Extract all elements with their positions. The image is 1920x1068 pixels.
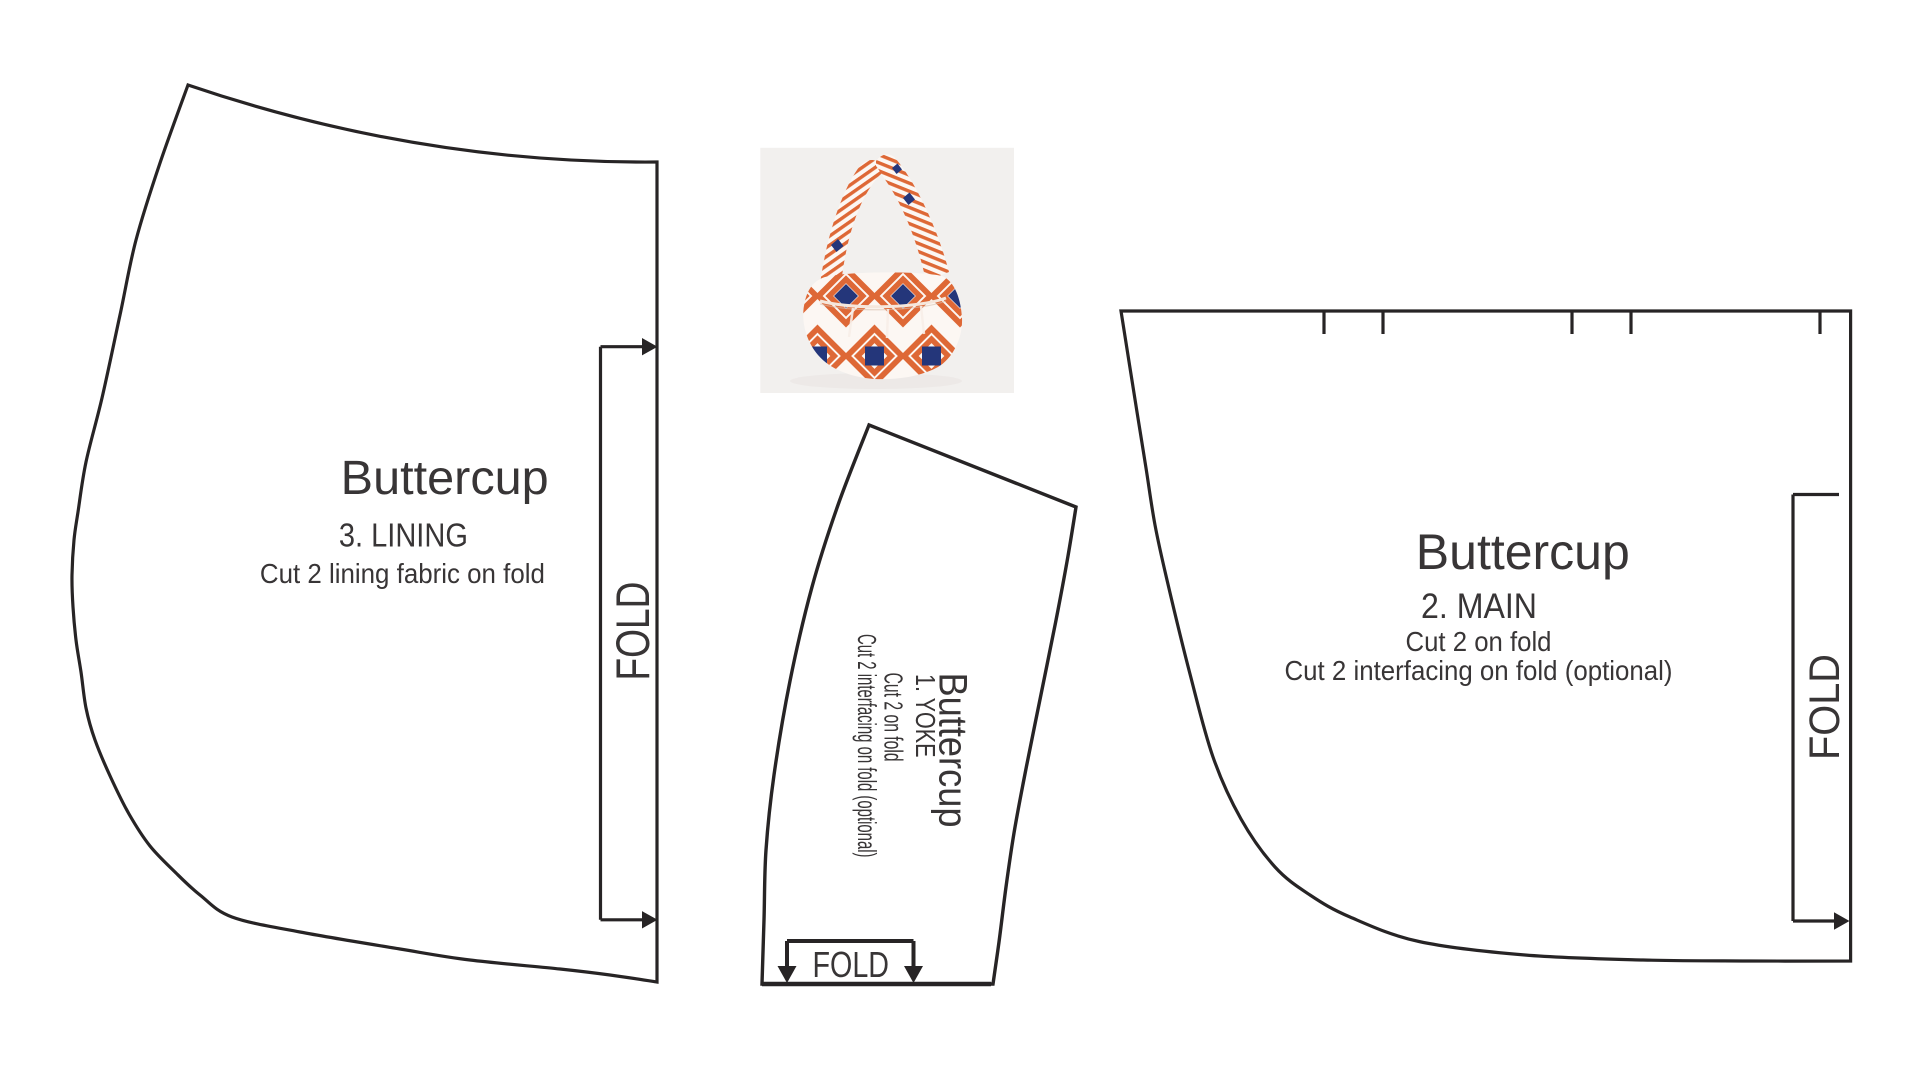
svg-text:Buttercup: Buttercup <box>341 452 549 505</box>
svg-text:Cut 2 interfacing on fold (opt: Cut 2 interfacing on fold (optional) <box>1285 655 1673 686</box>
svg-text:1. YOKE: 1. YOKE <box>910 674 941 758</box>
svg-text:Cut 2 on fold: Cut 2 on fold <box>879 673 909 762</box>
svg-text:FOLD: FOLD <box>606 582 659 681</box>
svg-text:Cut 2 on fold: Cut 2 on fold <box>1406 626 1552 657</box>
svg-text:Cut 2 lining fabric on fold: Cut 2 lining fabric on fold <box>260 558 545 589</box>
svg-text:FOLD: FOLD <box>1801 654 1849 760</box>
svg-text:Cut 2 interfacing on fold (opt: Cut 2 interfacing on fold (optional) <box>852 634 882 858</box>
svg-text:FOLD: FOLD <box>813 944 890 985</box>
svg-text:3. LINING: 3. LINING <box>339 516 468 553</box>
svg-text:2. MAIN: 2. MAIN <box>1421 587 1537 626</box>
svg-text:Buttercup: Buttercup <box>1416 524 1630 580</box>
